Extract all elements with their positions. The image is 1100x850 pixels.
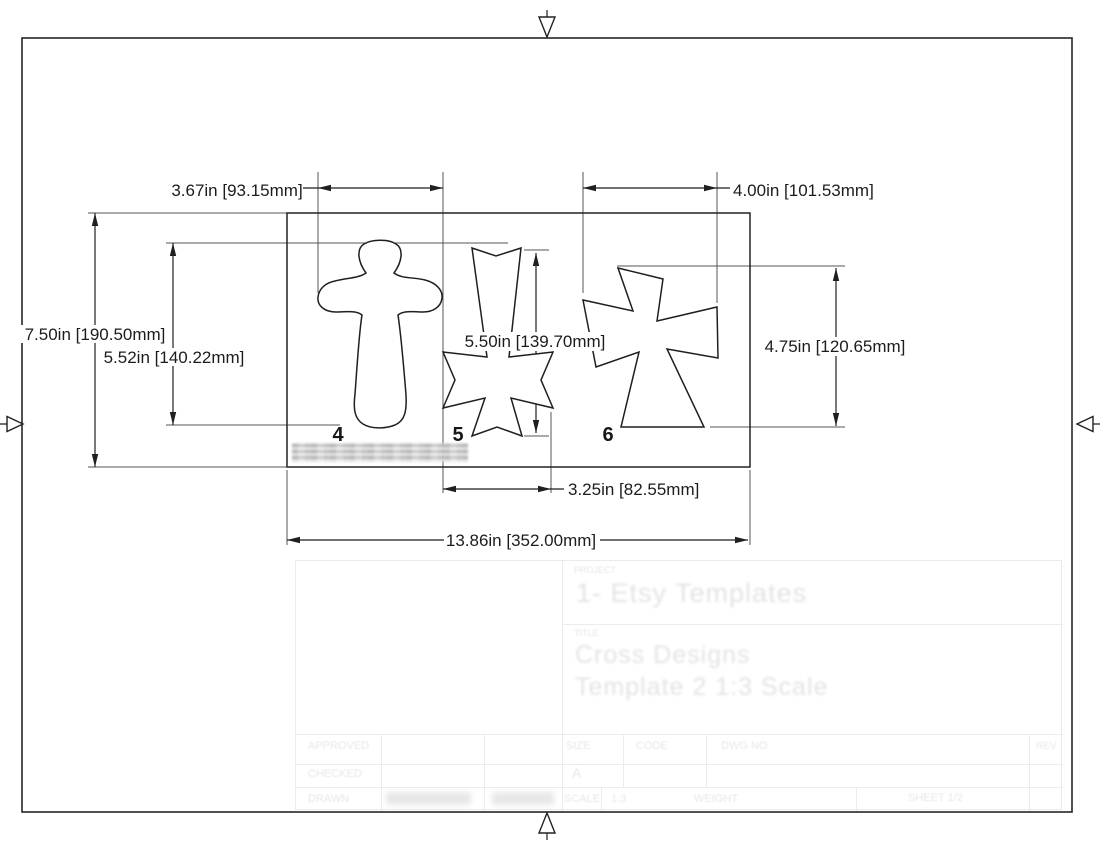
approved-label: APPROVED — [308, 741, 369, 752]
rev-label: REV — [1036, 742, 1057, 752]
dim-stencil-height: 7.50in [190.50mm] — [25, 325, 166, 344]
center-mark-left-icon — [7, 417, 23, 432]
weight-label: WEIGHT — [694, 794, 738, 805]
titleblock-divider — [706, 734, 707, 787]
titleblock-divider — [601, 787, 602, 811]
dim-cross5-width: 3.25in [82.55mm] — [568, 480, 699, 499]
titleblock-divider — [623, 734, 624, 787]
drawn-name-redacted — [386, 792, 471, 805]
dwg-no-label: DWG NO — [721, 741, 767, 752]
code-label: CODE — [636, 741, 668, 752]
scale-value: 1:3 — [611, 794, 626, 805]
titleblock-divider — [296, 734, 1063, 735]
item-number-6: 6 — [602, 424, 613, 446]
dim-cross6-width: 4.00in [101.53mm] — [733, 181, 874, 200]
title-label: TITLE — [574, 629, 599, 638]
drawn-label: DRAWN — [308, 794, 349, 805]
title-block: PROJECT 1- Etsy Templates TITLE Cross De… — [295, 560, 1062, 810]
center-mark-right-icon — [1077, 417, 1093, 432]
dim-cross5-height: 5.50in [139.70mm] — [465, 332, 606, 351]
project-label: PROJECT — [574, 566, 616, 575]
redacted-label-bar — [292, 443, 468, 462]
titleblock-divider — [296, 764, 1063, 765]
drawing-sheet: 3.67in [93.15mm] 4.00in [101.53mm] 7.50i… — [0, 0, 1100, 850]
center-mark-top-icon — [539, 17, 555, 37]
drawn-date-redacted — [492, 792, 554, 805]
checked-label: CHECKED — [308, 769, 362, 780]
dim-stencil-width: 13.86in [352.00mm] — [446, 531, 596, 550]
center-mark-bottom-icon — [539, 813, 555, 833]
dim-cross4-width: 3.67in [93.15mm] — [171, 181, 302, 200]
titleblock-divider — [562, 561, 563, 811]
project-value: 1- Etsy Templates — [576, 580, 807, 607]
titleblock-divider — [381, 734, 382, 811]
sheet-label: SHEET 1/2 — [908, 793, 963, 804]
title-value-line1: Cross Designs — [575, 643, 751, 668]
titleblock-divider — [856, 787, 857, 811]
size-value: A — [572, 766, 581, 780]
cross-4-rounded-outline — [318, 240, 442, 428]
dim-cross6-height: 4.75in [120.65mm] — [765, 337, 906, 356]
size-label: SIZE — [566, 741, 590, 752]
dim-cross4-height: 5.52in [140.22mm] — [104, 348, 245, 367]
titleblock-divider — [296, 787, 1063, 788]
titleblock-divider — [1029, 734, 1030, 811]
titleblock-divider — [484, 734, 485, 811]
title-value-line2: Template 2 1:3 Scale — [575, 675, 828, 700]
titleblock-divider — [562, 624, 1063, 625]
scale-label: SCALE — [564, 794, 600, 805]
